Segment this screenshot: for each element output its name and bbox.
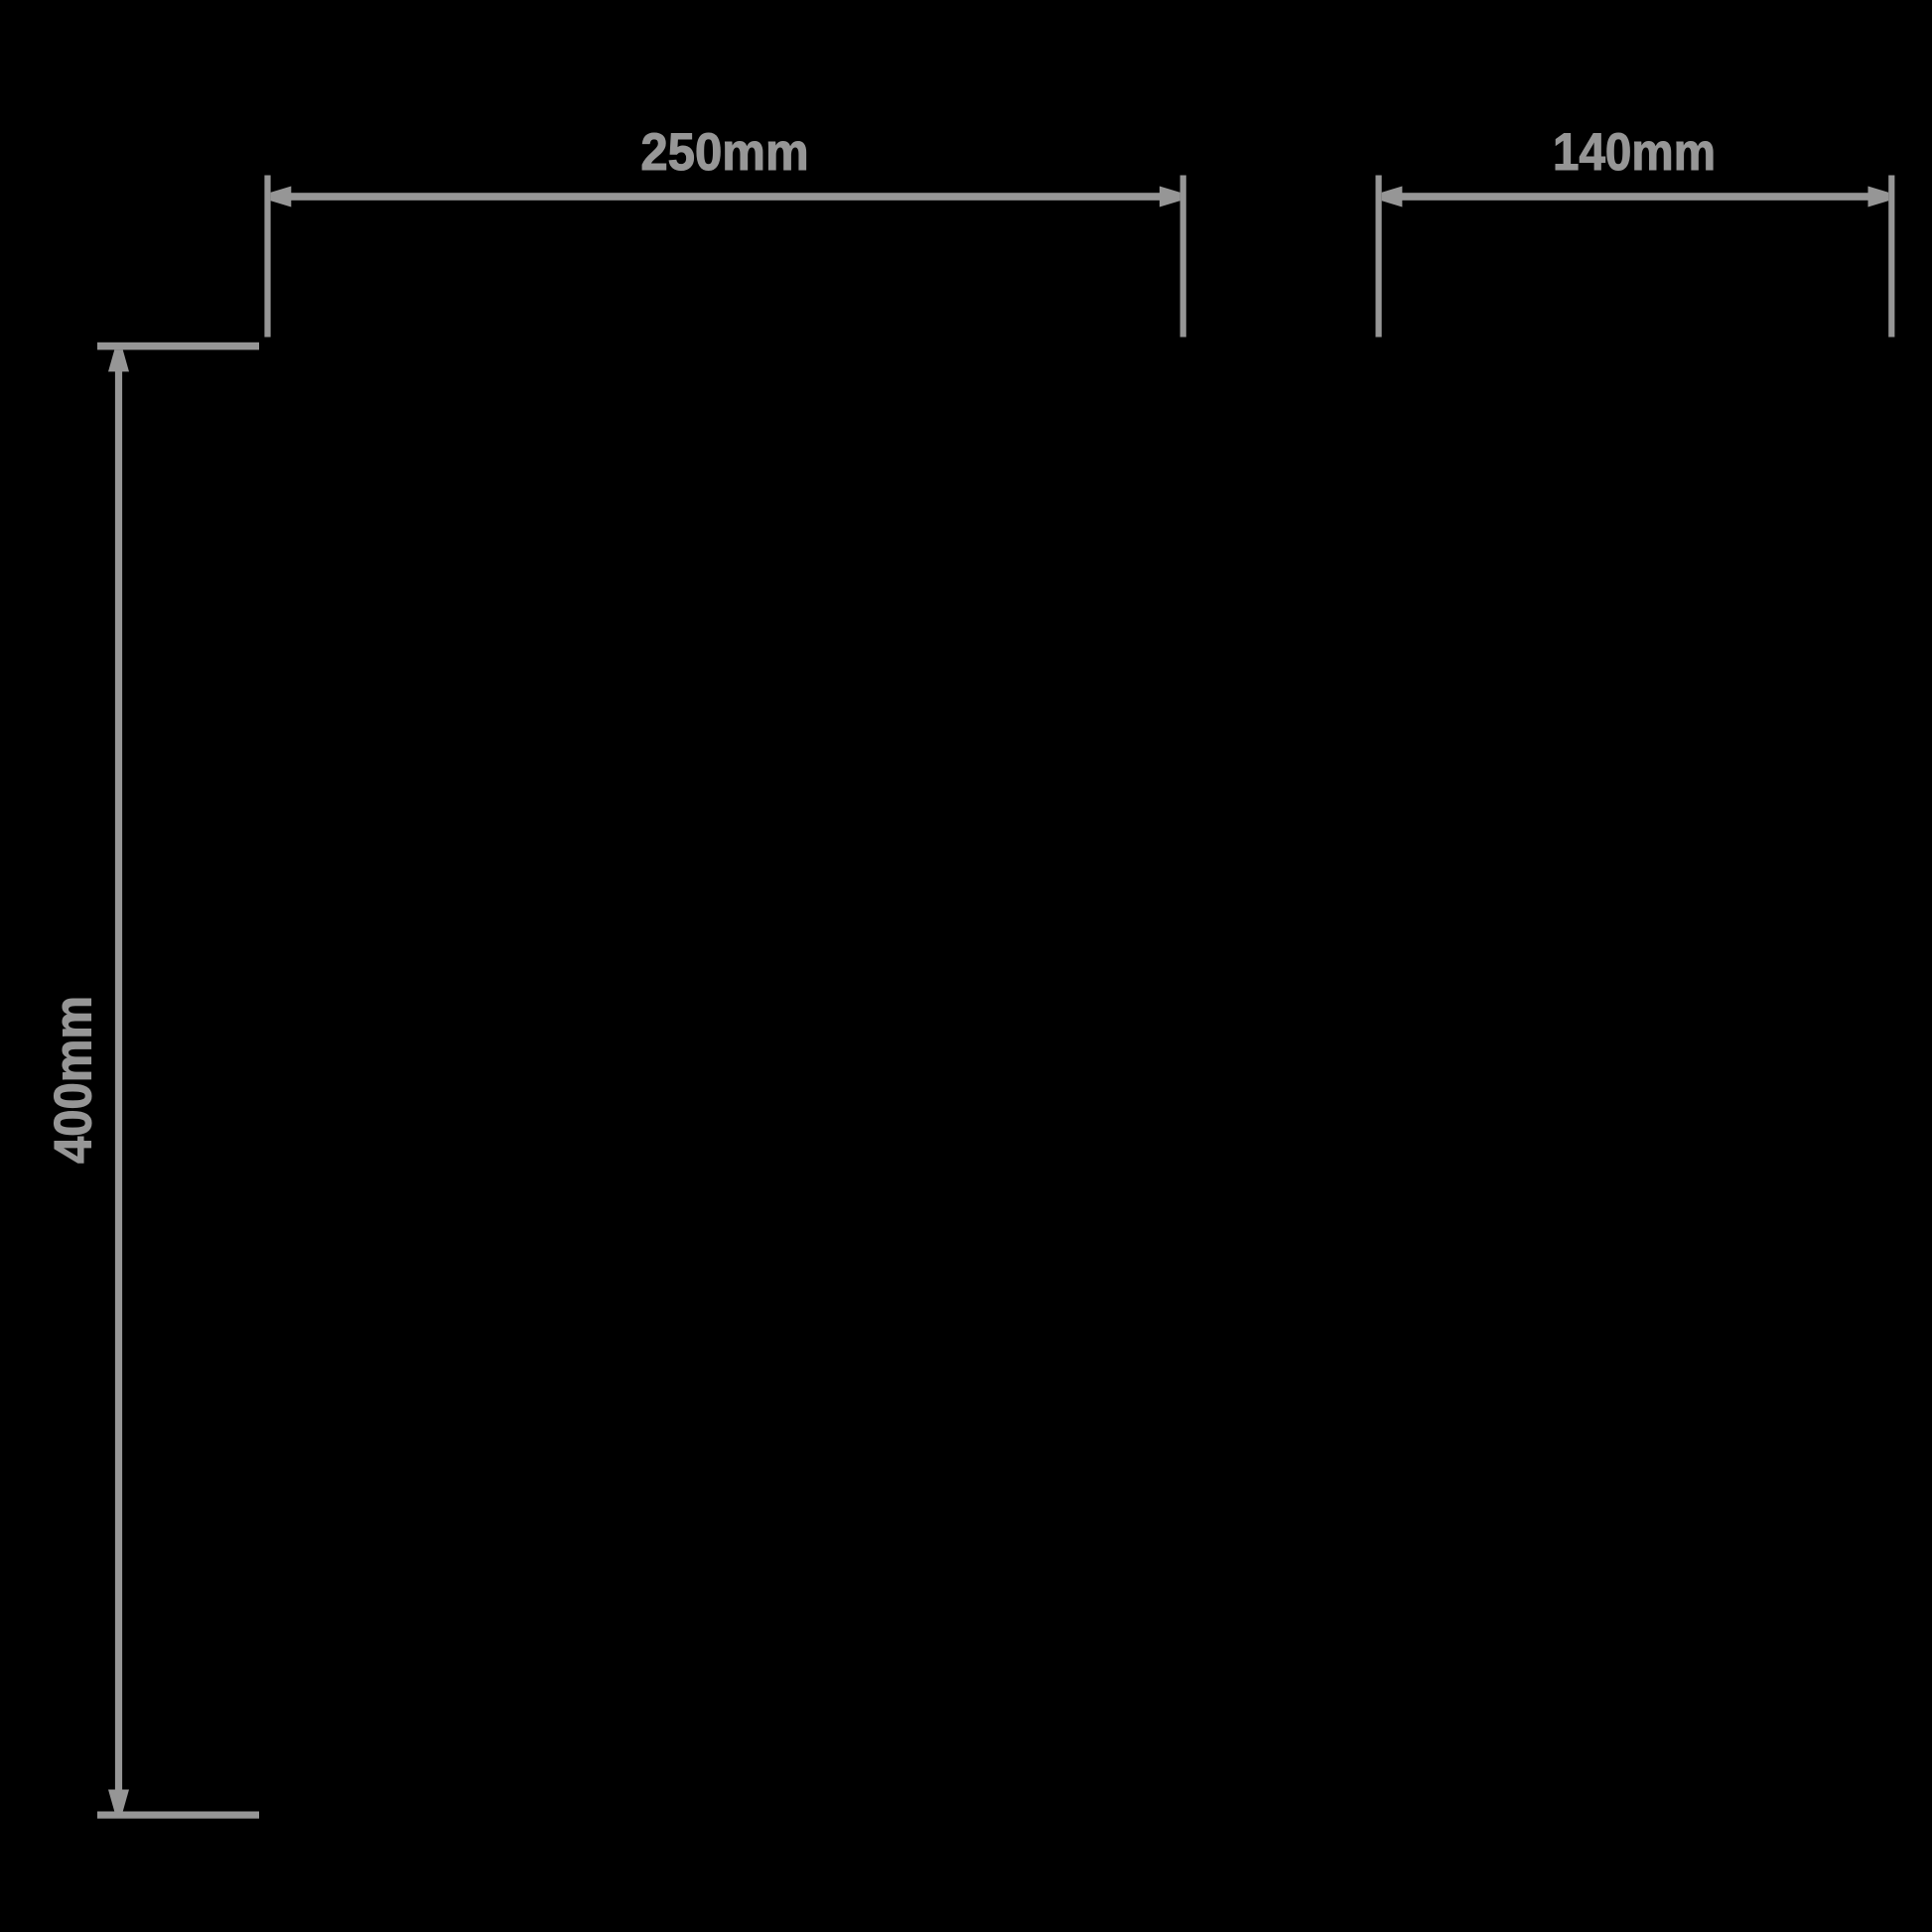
svg-text:140mm: 140mm: [1553, 123, 1716, 182]
svg-text:250mm: 250mm: [640, 123, 808, 182]
svg-text:400mm: 400mm: [45, 996, 103, 1164]
